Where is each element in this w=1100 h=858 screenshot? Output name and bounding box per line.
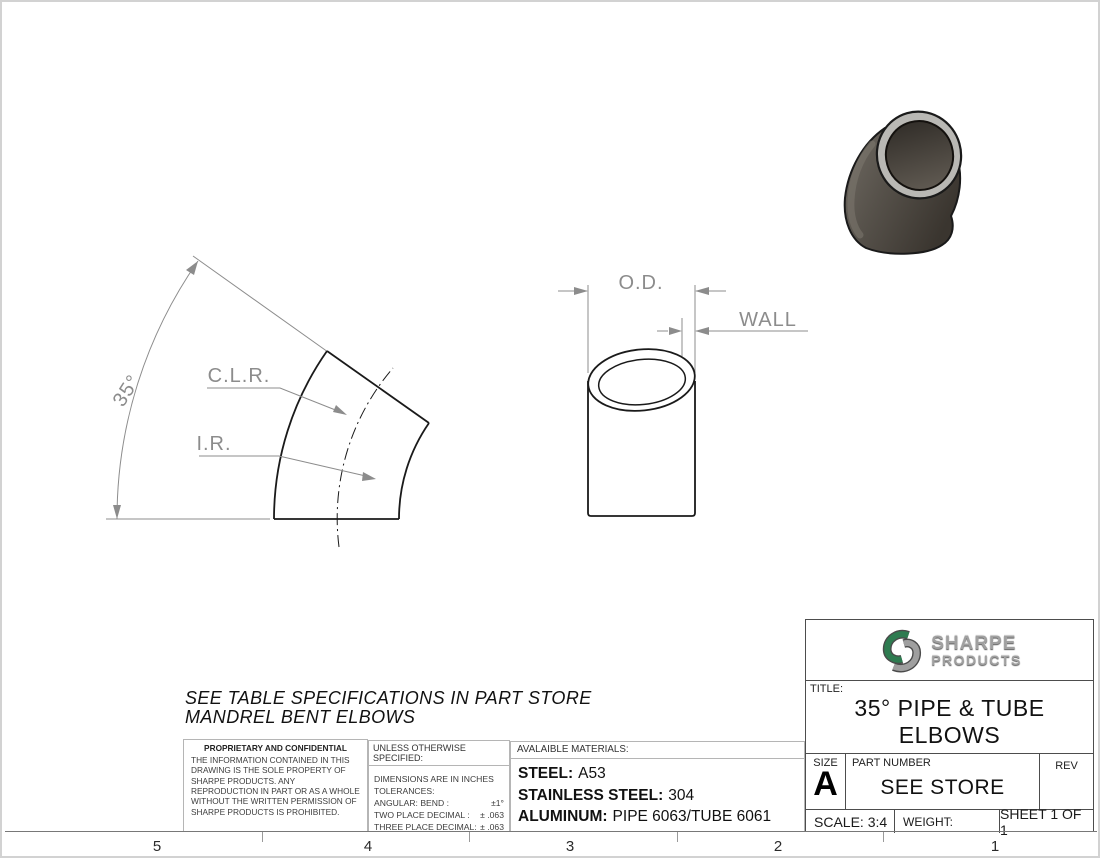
part-number-value: SEE STORE bbox=[846, 776, 1039, 800]
sheet-cell: SHEET 1 OF 1 bbox=[1000, 810, 1093, 833]
drawing-sheet: 35° C.L.R. I.R. O.D. bbox=[0, 0, 1100, 858]
clr-leader bbox=[207, 388, 343, 413]
frame-bottom-line bbox=[5, 831, 1097, 832]
zone-number: 4 bbox=[348, 838, 388, 855]
elbow-side-view: 35° C.L.R. I.R. bbox=[106, 256, 429, 547]
logo-line1: SHARPE bbox=[931, 634, 1022, 653]
ir-label: I.R. bbox=[196, 433, 231, 455]
materials-header: AVALAIBLE MATERIALS: bbox=[511, 742, 804, 759]
zone-number: 1 bbox=[975, 838, 1015, 855]
elbow-centerline bbox=[337, 368, 393, 547]
proprietary-box: PROPRIETARY AND CONFIDENTIAL THE INFORMA… bbox=[183, 739, 368, 832]
arrowhead bbox=[113, 505, 121, 519]
arrowhead bbox=[695, 327, 709, 335]
drawing-title-line2: ELBOWS bbox=[806, 722, 1093, 749]
size-value: A bbox=[806, 769, 845, 799]
logo-line2: PRODUCTS bbox=[931, 653, 1022, 667]
wall-label: WALL bbox=[739, 309, 797, 331]
logo-text: SHARPE PRODUCTS bbox=[931, 634, 1022, 667]
material-value: A53 bbox=[578, 765, 606, 782]
material-row: STAINLESS STEEL:304 bbox=[518, 785, 804, 807]
elbow-inner-arc bbox=[399, 423, 429, 519]
clr-label: C.L.R. bbox=[208, 365, 271, 387]
title-block: SHARPE PRODUCTS TITLE: 35° PIPE & TUBE E… bbox=[805, 619, 1094, 832]
drawing-title: 35° PIPE & TUBE ELBOWS bbox=[806, 695, 1093, 749]
tolerances-box: UNLESS OTHERWISE SPECIFIED: DIMENSIONS A… bbox=[368, 740, 510, 832]
zone-number: 3 bbox=[550, 838, 590, 855]
tolerance-value: ± .063 bbox=[480, 809, 504, 821]
materials-box: AVALAIBLE MATERIALS: STEEL:A53 STAINLESS… bbox=[510, 741, 805, 832]
tolerance-label: ANGULAR: BEND : bbox=[374, 797, 449, 809]
material-row: STEEL:A53 bbox=[518, 763, 804, 785]
zone-tick bbox=[469, 832, 470, 842]
elbow-3d-render bbox=[845, 102, 972, 254]
scale-cell: SCALE: 3:4 bbox=[806, 810, 895, 833]
od-label: O.D. bbox=[618, 272, 663, 294]
arrowhead bbox=[362, 472, 376, 481]
arrowhead bbox=[574, 287, 588, 295]
part-number-label: PART NUMBER bbox=[852, 757, 931, 769]
arrowhead bbox=[695, 287, 709, 295]
tube-end-view: O.D. WALL bbox=[558, 272, 808, 516]
arrowhead bbox=[186, 261, 198, 275]
proprietary-header: PROPRIETARY AND CONFIDENTIAL bbox=[191, 743, 360, 753]
weight-cell: WEIGHT: bbox=[895, 810, 1000, 833]
arrowhead bbox=[333, 405, 347, 415]
material-label: STEEL: bbox=[518, 765, 573, 782]
zone-number: 5 bbox=[137, 838, 177, 855]
size-part-rev-row: SIZE A PART NUMBER SEE STORE REV bbox=[806, 753, 1093, 809]
material-label: STAINLESS STEEL: bbox=[518, 787, 663, 804]
drawing-title-line1: 35° PIPE & TUBE bbox=[806, 695, 1093, 722]
spec-note-line1: SEE TABLE SPECIFICATIONS IN PART STORE bbox=[185, 689, 592, 708]
material-label: ALUMINUM: bbox=[518, 808, 608, 825]
arrowhead bbox=[669, 327, 682, 335]
rev-cell: REV bbox=[1040, 754, 1093, 809]
title-cell: TITLE: 35° PIPE & TUBE ELBOWS bbox=[806, 680, 1093, 753]
tolerances-line2: TOLERANCES: bbox=[374, 785, 504, 797]
size-cell: SIZE A bbox=[806, 754, 846, 809]
scale-weight-sheet-row: SCALE: 3:4 WEIGHT: SHEET 1 OF 1 bbox=[806, 809, 1093, 833]
spec-note: SEE TABLE SPECIFICATIONS IN PART STORE M… bbox=[185, 689, 592, 727]
zone-tick bbox=[677, 832, 678, 842]
sharpe-logo-icon bbox=[877, 626, 925, 674]
angle-extension-line bbox=[193, 256, 328, 352]
elbow-outer-arc bbox=[274, 351, 327, 519]
tolerance-label: TWO PLACE DECIMAL : bbox=[374, 809, 470, 821]
tolerance-value: ±1° bbox=[491, 797, 504, 809]
ir-leader bbox=[199, 456, 370, 477]
spec-note-line2: MANDREL BENT ELBOWS bbox=[185, 708, 592, 727]
tolerances-line1: DIMENSIONS ARE IN INCHES bbox=[374, 773, 504, 785]
part-number-cell: PART NUMBER SEE STORE bbox=[846, 754, 1040, 809]
material-row: ALUMINUM:PIPE 6063/TUBE 6061 bbox=[518, 806, 804, 828]
proprietary-body: THE INFORMATION CONTAINED IN THIS DRAWIN… bbox=[191, 755, 360, 817]
zone-tick bbox=[883, 832, 884, 842]
title-label: TITLE: bbox=[810, 683, 843, 695]
tolerance-row: ANGULAR: BEND : ±1° bbox=[374, 797, 504, 809]
logo-cell: SHARPE PRODUCTS bbox=[806, 620, 1093, 680]
tolerances-header: UNLESS OTHERWISE SPECIFIED: bbox=[369, 741, 509, 766]
tolerance-row: TWO PLACE DECIMAL : ± .063 bbox=[374, 809, 504, 821]
material-value: 304 bbox=[668, 787, 694, 804]
rev-label: REV bbox=[1040, 760, 1093, 772]
zone-number: 2 bbox=[758, 838, 798, 855]
material-value: PIPE 6063/TUBE 6061 bbox=[613, 808, 772, 825]
zone-tick bbox=[262, 832, 263, 842]
